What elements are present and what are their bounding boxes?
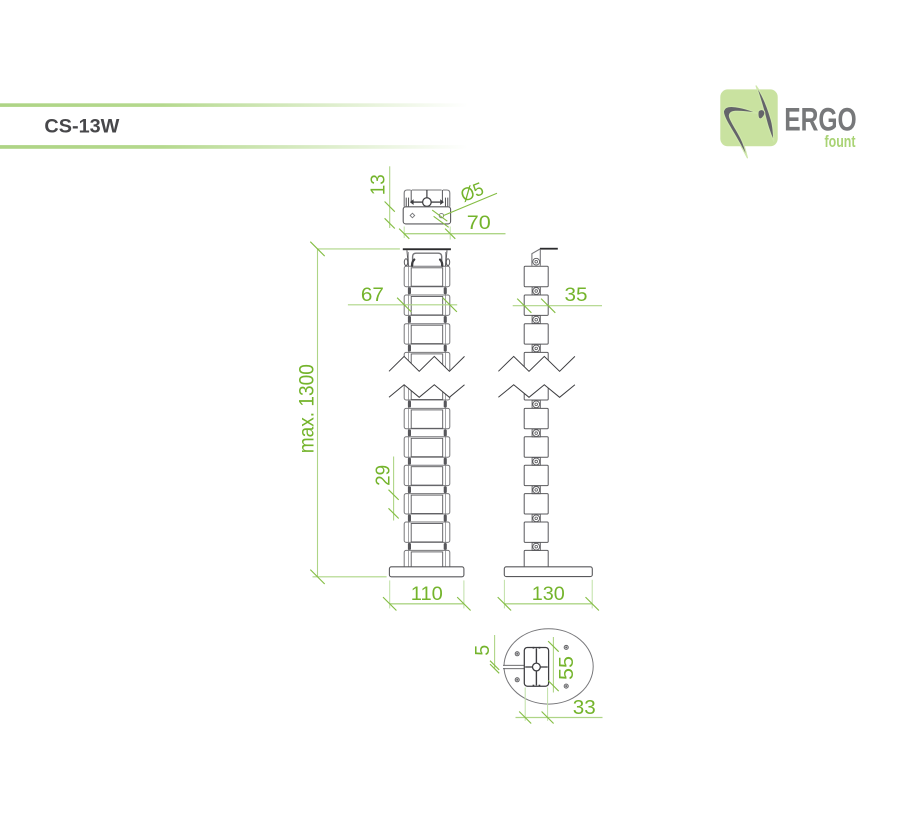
svg-text:35: 35	[565, 285, 588, 306]
svg-text:67: 67	[361, 285, 384, 306]
svg-text:13: 13	[368, 174, 390, 195]
svg-text:max. 1300: max. 1300	[295, 364, 318, 453]
svg-text:5: 5	[472, 645, 494, 656]
svg-text:55: 55	[555, 656, 578, 680]
svg-text:ERGO: ERGO	[784, 101, 857, 137]
svg-text:fount: fount	[825, 133, 856, 151]
svg-text:130: 130	[532, 584, 565, 605]
svg-text:70: 70	[467, 213, 491, 234]
svg-text:33: 33	[573, 697, 596, 719]
svg-text:CS-13W: CS-13W	[44, 116, 120, 138]
svg-text:110: 110	[411, 584, 443, 605]
svg-text:29: 29	[373, 465, 395, 486]
